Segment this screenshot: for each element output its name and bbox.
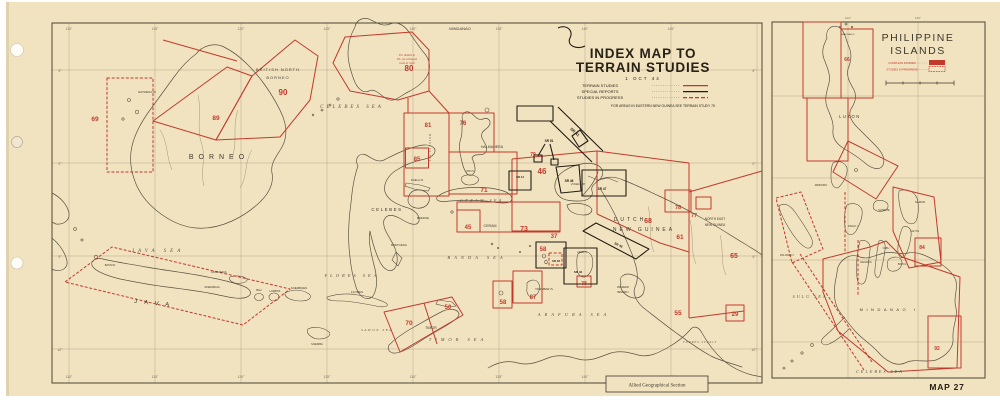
inset-legend-symbol-solid — [929, 60, 945, 65]
lon-tick: 125° — [915, 16, 922, 20]
lon-tick: 120° — [237, 27, 245, 31]
sea-label: JAVA SEA — [132, 249, 185, 254]
legend-label-studies-in-progress: STUDIES IN PROGRESS — [577, 95, 624, 100]
sea-label: TIMOR SEA — [429, 337, 488, 342]
punch-hole — [11, 44, 24, 57]
inset-title-line1: PHILIPPINE — [882, 32, 955, 44]
sea-label: FLORES SEA — [323, 273, 379, 278]
lat-tick: 10° — [57, 348, 63, 352]
inset-place-label: NEGROS — [860, 260, 872, 264]
place-label: FREDERIK — [617, 286, 629, 289]
sr-label: SR 42 — [574, 270, 583, 274]
place-label: NEW GUINEA — [613, 227, 675, 233]
lon-tick: 125° — [323, 27, 331, 31]
study-number: 46 — [538, 167, 547, 176]
lon-tick: 115° — [152, 27, 159, 31]
place-label: FLORES — [351, 290, 363, 294]
place-label: MINDANAO — [449, 26, 471, 31]
study-number: 58 — [540, 247, 547, 253]
study-number: 92 — [934, 346, 940, 352]
place-label: BORNEO — [189, 154, 249, 161]
study-number: 58 — [500, 300, 507, 306]
study-number: 50 — [445, 305, 452, 311]
inset-place-label: MASBATE — [878, 209, 890, 212]
inset-reference-note: For details in P.I. see enlarged inset a… — [396, 53, 417, 65]
study-number: 85 — [414, 157, 421, 163]
study-number: 45 — [465, 225, 472, 231]
inset-sea-label: CELEBES SEA — [856, 369, 904, 374]
inset-place-label: PANAY I — [848, 224, 858, 228]
legend-label-terrain-studies: TERRAIN STUDIES — [582, 83, 618, 88]
study-number: 55 — [674, 310, 682, 317]
place-label: BOEROE — [417, 216, 429, 220]
place-label: NEW GUINEA — [705, 223, 726, 227]
punch-hole — [12, 137, 23, 148]
lon-tick: 120° — [237, 375, 245, 379]
sea-label: CELEBES SEA — [320, 105, 384, 110]
study-number: 80 — [405, 64, 414, 73]
note-line: inset at right — [399, 61, 415, 65]
legend-label-special-reports: SPECIAL REPORTS — [581, 89, 618, 94]
place-label: OBI IS — [466, 169, 474, 173]
lon-tick: 110° — [66, 375, 73, 379]
study-number: 90 — [279, 88, 288, 97]
lon-tick: 135° — [495, 375, 503, 379]
sea-label: CERAM SEA — [460, 198, 504, 203]
place-label: BRITISH NORTH — [256, 67, 300, 72]
place-label: NATOENA IS — [138, 90, 156, 94]
inset-place-label: BOHOL — [898, 263, 907, 266]
study-number: 71 — [480, 187, 488, 194]
place-label: NORTH EAST — [705, 217, 726, 221]
place-label: CERAM — [484, 224, 497, 228]
place-label: LOMBOK — [269, 289, 280, 293]
legend-footnote: FOR AREAS IN EASTERN NEW GUINEA SEE TERR… — [611, 104, 715, 108]
place-label: MADOERA — [211, 270, 226, 274]
map-title-line2: TERRAIN STUDIES — [576, 60, 710, 75]
study-number: 29 — [732, 312, 739, 318]
sr-label: SR 51 — [545, 139, 554, 143]
sea-label: SAWOE SEA — [361, 328, 393, 332]
lon-tick: 140° — [581, 27, 589, 31]
map-date: 1 OCT 44 — [625, 76, 660, 81]
study-number: 76 — [460, 121, 467, 127]
lat-tick: 10° — [751, 348, 757, 352]
study-number: 89 — [212, 115, 220, 122]
lon-tick: 110° — [66, 27, 73, 31]
sea-label: BANDA SEA — [447, 255, 506, 260]
paper-edge-shadow — [6, 2, 9, 396]
inset-place-label: LUZON — [839, 114, 861, 119]
place-label: BOETOENG — [391, 243, 407, 247]
lon-tick: 130° — [409, 27, 417, 31]
study-number: 69 — [91, 116, 99, 123]
place-label: SOERABAJA — [204, 285, 220, 289]
lon-tick: 135° — [495, 27, 503, 31]
inset-sea-label: SULU SEA — [793, 294, 828, 299]
sr-label: SR 44 — [516, 175, 524, 179]
study-number: 65 — [730, 253, 738, 260]
sea-label: ARAFURA SEA — [537, 312, 611, 317]
sea-label: TORRES STRAIT — [683, 340, 717, 344]
study-number: 84 — [919, 245, 925, 251]
punch-hole — [11, 257, 23, 269]
place-label: BATAVIA — [105, 263, 116, 267]
place-label: TANIMBAR IS — [535, 287, 553, 291]
study-number: 66 — [844, 57, 850, 63]
map-number: MAP 27 — [929, 382, 964, 392]
sr-label: SR 48 — [552, 259, 560, 263]
inset-place-label: MINDORO — [815, 183, 828, 187]
place-label: CELEBES — [371, 207, 402, 212]
study-number: 70 — [405, 320, 413, 327]
inset-legend-complete: COMPLETE STUDIES — [888, 61, 915, 65]
place-label: DUTCH — [614, 217, 647, 223]
study-number: 68 — [644, 218, 652, 225]
place-label: AROE IS — [577, 251, 587, 254]
study-number: 87 — [530, 295, 537, 301]
study-number: 78 — [675, 205, 681, 211]
sea-label: MOLUCCA SEA — [428, 133, 431, 162]
lon-tick: 145° — [667, 27, 675, 31]
study-number: 77 — [691, 213, 697, 219]
lon-tick: 120° — [845, 16, 852, 20]
sr-label: SR 46 — [565, 179, 574, 183]
place-label: HENDRIK I — [617, 291, 629, 294]
inset-place-label: CEBU — [883, 247, 890, 250]
study-number: 37 — [551, 234, 558, 240]
place-label: BALI — [256, 288, 262, 292]
sr-label: SR 47 — [598, 187, 607, 191]
inset-place-label: SAMAR — [915, 200, 925, 204]
inset-place-label: MINDANAO I — [860, 307, 919, 312]
inset-place-label: BABUYAN IS — [842, 33, 856, 36]
place-label: BORNEO — [266, 75, 289, 80]
map-scan: 110° 115° 120° 125° 130° 135° 140° 145° … — [0, 0, 1000, 405]
study-number: 81 — [425, 123, 432, 129]
study-number: 61 — [676, 234, 684, 241]
study-number: 38 — [581, 281, 587, 287]
study-number: 73 — [520, 226, 528, 233]
lon-tick: 125° — [323, 375, 331, 379]
inset-place-label: PALAWAN I — [780, 253, 794, 257]
credit-text: Allied Geographical Section — [629, 384, 686, 389]
place-label: HALMAHERA — [481, 145, 504, 149]
inset-title-line2: ISLANDS — [890, 45, 945, 57]
place-label: SOEMBA — [311, 342, 323, 346]
place-label: TIMOR — [425, 326, 437, 330]
credit-box: Allied Geographical Section — [606, 376, 708, 392]
place-label: SOELA IS — [411, 178, 424, 182]
study-number: 79 — [530, 152, 536, 158]
lon-tick: 140° — [581, 375, 589, 379]
lon-tick: 115° — [152, 375, 159, 379]
place-label: SOEMBAWA — [291, 286, 307, 290]
inset-place-label: LEYTE — [911, 229, 919, 233]
map-title-line1: INDEX MAP TO — [590, 46, 697, 61]
lon-tick: 130° — [409, 375, 417, 379]
